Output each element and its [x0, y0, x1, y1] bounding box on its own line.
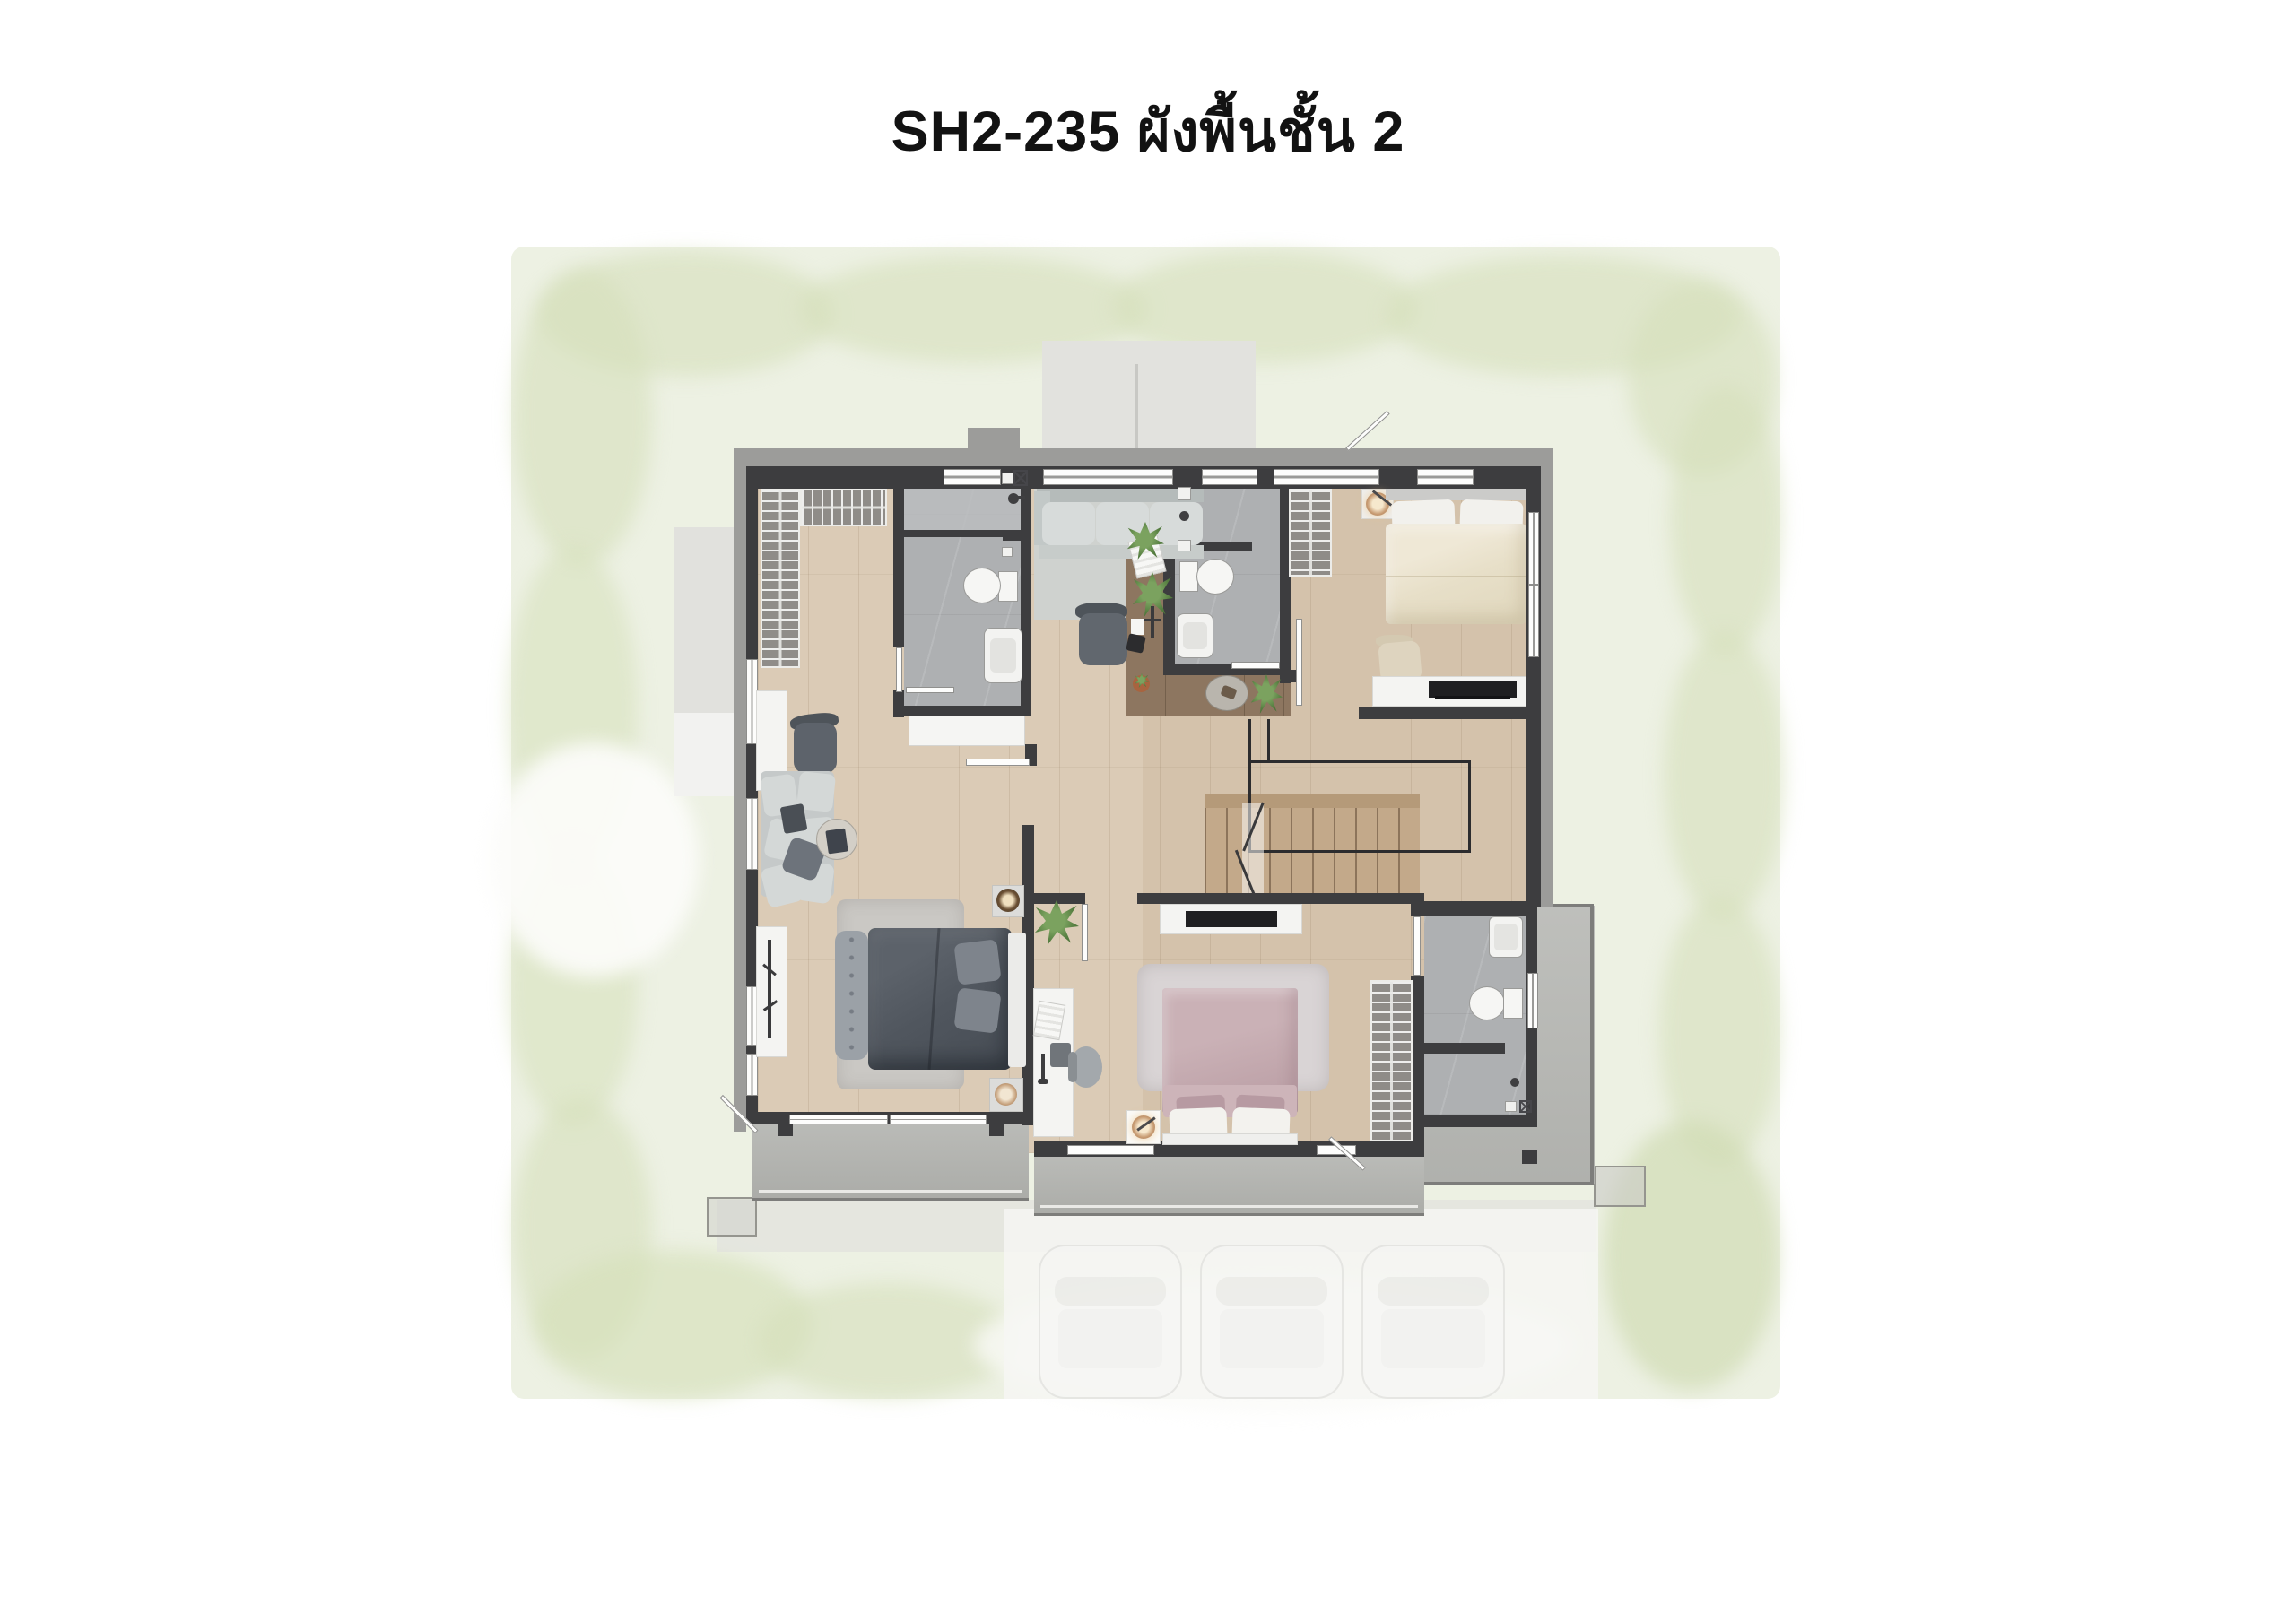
window-bedroom2-side-b — [1528, 585, 1539, 657]
balcony-left-edge-line — [752, 1198, 1029, 1201]
door-bath2-sliding — [1231, 662, 1280, 669]
bath1-shower-tile — [904, 489, 1021, 530]
stairs-landing-cap — [1205, 794, 1420, 808]
bath3-toilet-tank — [1503, 988, 1523, 1019]
pad-top-flue-line — [1135, 364, 1138, 451]
stairs-rail-right — [1468, 760, 1471, 853]
bedroom2-headboard — [1386, 489, 1526, 500]
dressing-wardrobe-top — [800, 489, 887, 526]
floor-plan — [0, 0, 2296, 1623]
door-bath1-sliding — [906, 687, 954, 693]
door-bedroom3-leaf — [1082, 904, 1088, 961]
wall-top-outer-band — [734, 448, 1544, 466]
floor-plan-page: SH2-235 ผังพื้นชั้น 2 — [0, 0, 2296, 1623]
window-lounge-nook — [1043, 469, 1173, 485]
bedroom3-headboard — [1162, 1133, 1298, 1145]
study-desk-sculpture — [1151, 606, 1154, 638]
study-chair-seat — [1079, 613, 1127, 665]
balcony-right-edge-line — [1034, 1213, 1424, 1216]
slab-step-left — [707, 1197, 757, 1237]
dressing-dresser — [909, 716, 1025, 746]
dressing-chair-seat — [794, 723, 837, 773]
window-lounge-left — [746, 798, 758, 870]
door-bath3-leaf — [1413, 916, 1421, 976]
master-console — [756, 926, 787, 1057]
bedroom2-duvet — [1386, 524, 1526, 624]
wall-left-outer-band — [734, 448, 746, 1132]
master-console-branch — [768, 940, 771, 1038]
concrete-pad-top — [1042, 341, 1256, 451]
bath1-sink-basin — [990, 638, 1016, 673]
balcony-right-rail-line — [1040, 1205, 1418, 1208]
wall-bath1-left-upper — [893, 466, 904, 647]
window-master-bottom-a — [789, 1115, 888, 1124]
wall-bath1-bottom — [893, 706, 1031, 716]
window-bedroom2-right — [1417, 469, 1474, 485]
master-pillow-b — [953, 987, 1001, 1034]
wall-bath1-partition — [904, 530, 1003, 537]
bath1-shower-head — [1008, 493, 1019, 504]
bath2-accessory-b — [1178, 487, 1191, 500]
foliage-right-1 — [1670, 386, 1782, 655]
bath2-shower-head — [1179, 511, 1189, 521]
bedroom2-duvet-foldline — [1386, 576, 1526, 577]
bath3-shaft-box — [1519, 1100, 1532, 1113]
bedroom3-desk-lamp-base — [1038, 1079, 1048, 1084]
wall-bedroom3-bath3-upper — [1411, 893, 1424, 916]
foliage-right-2 — [1664, 632, 1785, 919]
car-2-roof — [1220, 1309, 1324, 1368]
door-bath1-left-leaf — [896, 647, 902, 692]
nook-sofa-cushion-1 — [1042, 502, 1095, 545]
foliage-left-1 — [513, 269, 652, 565]
bath3-toilet-bowl — [1469, 986, 1505, 1020]
window-master-left-b — [746, 1054, 758, 1096]
wall-stairs-south-b — [1137, 893, 1424, 904]
bedroom3-wardrobe — [1370, 980, 1413, 1141]
study-desk-paper — [1131, 619, 1144, 635]
wall-bath1-right — [1021, 466, 1031, 716]
terrace-edge-line — [1590, 906, 1594, 1184]
car-3-roof — [1381, 1309, 1485, 1368]
bedroom2-tv-stand — [1435, 696, 1510, 699]
dressing-wardrobe-left — [761, 489, 800, 668]
study-desk-sculpture-bar — [1144, 619, 1161, 621]
window-bedroom2-left — [1274, 469, 1379, 485]
bath2-sink-basin — [1183, 622, 1207, 649]
wall-bath3-bottom — [1415, 1115, 1537, 1127]
master-bench-chaise — [835, 931, 868, 1060]
master-table-book — [825, 829, 848, 855]
window-bath3-side — [1527, 973, 1538, 1028]
foliage-right-4 — [1604, 1121, 1779, 1390]
study-desk-pad — [1126, 633, 1146, 654]
wall-top-protrusion — [968, 428, 1020, 448]
stairs-rail-post-b — [1267, 719, 1270, 760]
bath2-accessory-a — [1178, 540, 1191, 551]
car-1-roof — [1058, 1309, 1162, 1368]
wall-bath1-partition-stub — [1003, 530, 1022, 541]
balcony-left-rail-line — [759, 1190, 1022, 1193]
door-dressing-leaf — [966, 759, 1030, 766]
wall-bath3-partition — [1424, 1043, 1505, 1054]
balcony-left-floor — [752, 1124, 1029, 1200]
wall-terrace-corner-stub — [1522, 1150, 1537, 1164]
stairs-break-band — [1242, 803, 1264, 901]
window-bedroom2-side-a — [1528, 512, 1539, 585]
bath1-accessory — [1002, 547, 1013, 557]
bath1-shaft-box — [1013, 470, 1028, 486]
wall-bath3-top — [1424, 901, 1526, 916]
slab-step-right — [1594, 1166, 1646, 1207]
stairs-rail-post-a — [1248, 719, 1251, 760]
car-1-windshield — [1055, 1277, 1166, 1306]
wall-balcony-step-b — [989, 1119, 1004, 1136]
master-sofa-book — [780, 803, 808, 834]
bedroom3-tv — [1186, 911, 1277, 927]
bath2-toilet-tank — [1179, 561, 1198, 592]
bath3-sink-basin — [1494, 924, 1518, 950]
bath3-shower-head — [1510, 1078, 1519, 1087]
door-bedroom2-leaf — [1296, 619, 1302, 706]
stairs-rail-mid — [1248, 850, 1471, 853]
bath1-shower-arm — [1014, 496, 1025, 499]
bath1-shelf-box — [1002, 473, 1014, 484]
wall-stairvoid-north — [1359, 707, 1527, 719]
bedroom2-wardrobe — [1289, 489, 1332, 577]
master-lamp-top — [996, 889, 1020, 912]
window-bath2 — [1202, 469, 1257, 485]
window-bedroom3-bottom — [1067, 1145, 1154, 1155]
bedroom3-chair-back — [1068, 1052, 1077, 1082]
master-mattress-edge — [1008, 933, 1026, 1067]
car-3-windshield — [1378, 1277, 1489, 1306]
terrace-bottom-line — [1424, 1182, 1594, 1185]
window-master-bottom-b — [890, 1115, 987, 1124]
wall-right-outer-band — [1541, 448, 1553, 907]
master-pillow-a — [953, 939, 1001, 985]
window-bath1 — [944, 469, 1001, 485]
car-2-windshield — [1216, 1277, 1327, 1306]
bath2-toilet-bowl — [1196, 559, 1234, 595]
bath1-toilet-bowl — [963, 568, 1001, 603]
wall-bedroom2-door-stub — [1280, 670, 1296, 682]
master-lamp-bottom — [995, 1083, 1017, 1106]
bath3-drain — [1505, 1101, 1517, 1112]
bath1-toilet-tank — [998, 571, 1018, 602]
site-clearing-left — [489, 742, 700, 977]
wall-bedroom3-bath3-lower — [1411, 976, 1424, 1143]
stairs-rail-top — [1248, 760, 1471, 763]
